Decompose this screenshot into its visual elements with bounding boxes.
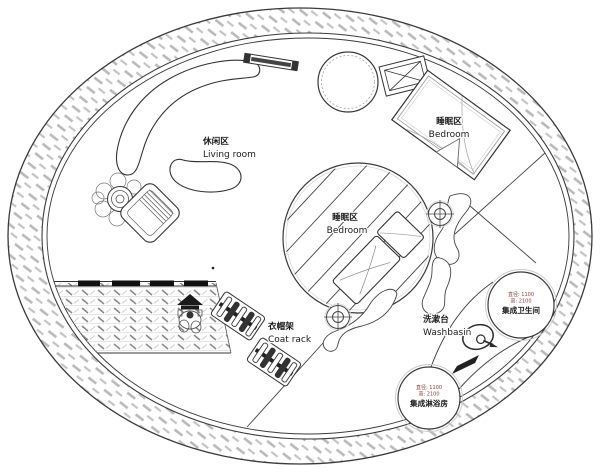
shower-pod-spec-height: 高: 2100 [419,391,440,398]
label-bedroom-upper-en: Bedroom [429,130,470,140]
toilet-pod-name: 集成卫生间 [501,305,540,315]
toilet-pod-spec-diameter: 直径: 1100 [508,291,534,298]
kidney-coffee-table [170,159,241,192]
label-bedroom-upper-zh: 睡眠区 [436,115,462,127]
label-washbasin-en: Washbasin [423,328,471,338]
shower-pod-name: 集成淋浴房 [409,398,448,408]
reference-dot [212,267,215,270]
toilet-pod [486,270,557,341]
floor-plan: 休闲区 Living room 睡眠区 Bedroom 睡眠区 Bedroom … [0,0,611,473]
toilet-pod-spec-height: 高: 2100 [511,298,532,305]
round-table [318,52,378,112]
shower-pod [396,365,463,432]
label-living-room-zh: 休闲区 [202,135,229,147]
threshold-bar [452,355,479,374]
floor-plan-drawing: 休闲区 Living room 睡眠区 Bedroom 睡眠区 Bedroom … [0,0,611,473]
label-coat-rack-en: Coat rack [268,335,312,345]
shower-pod-spec-diameter: 直径: 1100 [416,384,442,391]
label-bedroom-center-en: Bedroom [327,226,368,236]
label-washbasin-zh: 洗漱台 [423,313,449,325]
label-coat-rack-zh: 衣帽架 [268,320,294,332]
label-living-room-en: Living room [203,150,256,160]
partition-washbasin [462,199,536,263]
label-bedroom-center-zh: 睡眠区 [332,211,358,223]
